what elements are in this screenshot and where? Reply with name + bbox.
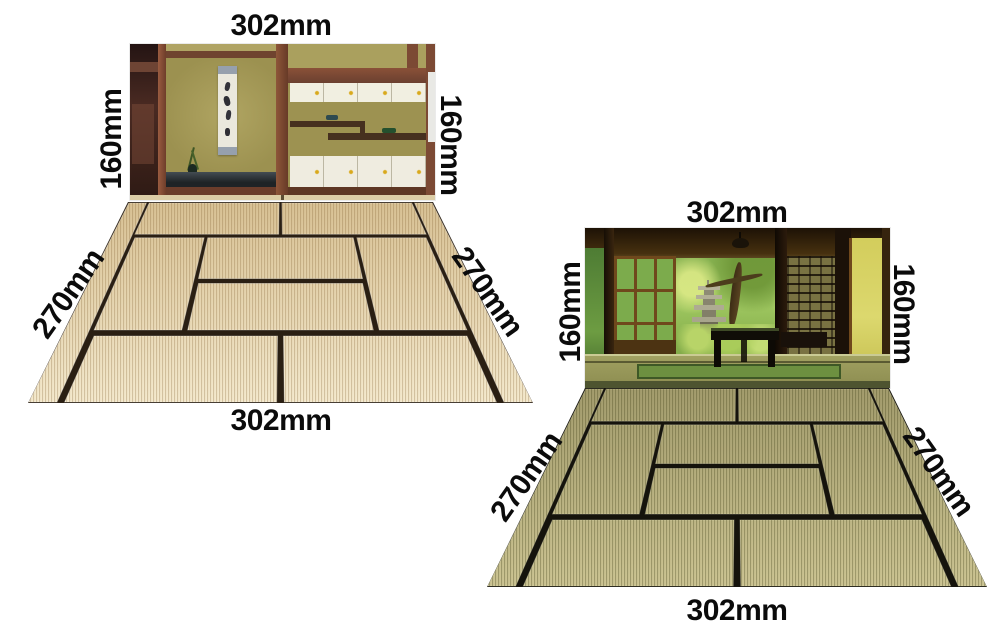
tatami-mat-texture — [523, 520, 734, 586]
tatami-mat-texture — [592, 389, 736, 421]
tatami-mat-texture — [656, 425, 819, 464]
tatami-floor-perspective-layer — [0, 0, 1000, 630]
tatami-mat-texture — [283, 336, 496, 402]
tatami-mat-texture — [738, 389, 882, 421]
tatami-mat-texture — [740, 520, 951, 586]
tatami-mat-texture — [198, 238, 362, 279]
tatami-mat-texture — [188, 283, 374, 330]
tatami-mat-texture — [282, 203, 426, 234]
tatami-mat-texture — [645, 468, 829, 514]
tatami-rug-dimension-diagram: 302mm 160mm 160mm 270mm 270mm 302mm — [0, 0, 1000, 630]
tatami-mat-texture — [65, 336, 278, 402]
tatami-mat-texture — [135, 203, 279, 234]
